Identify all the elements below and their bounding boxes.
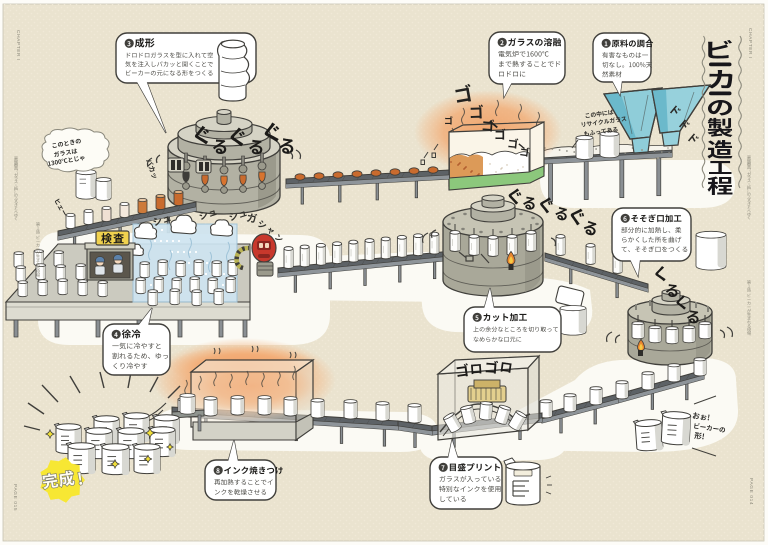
svg-text:PAGE 015: PAGE 015 (12, 484, 18, 511)
svg-text:CHAPTER I: CHAPTER I (747, 28, 753, 59)
svg-text:PAGE 014: PAGE 014 (748, 478, 754, 505)
svg-text:CHAPTER I: CHAPTER I (15, 30, 21, 61)
